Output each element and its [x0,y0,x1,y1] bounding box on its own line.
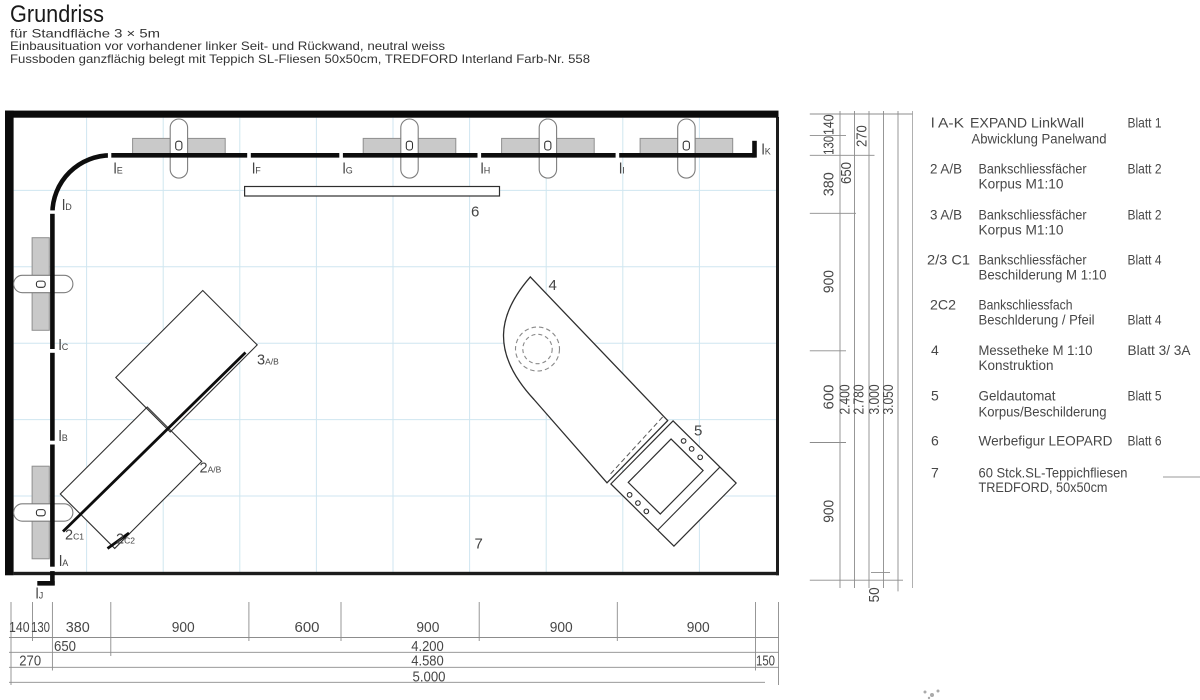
svg-text:4: 4 [931,342,939,358]
svg-text:270: 270 [855,125,871,147]
svg-text:4.200: 4.200 [411,639,444,655]
svg-text:5: 5 [694,423,702,440]
svg-text:6: 6 [471,204,479,221]
svg-text:Beschlderung / Pfeil: Beschlderung / Pfeil [979,312,1095,328]
svg-text:650: 650 [839,162,855,184]
svg-text:140: 140 [9,620,30,636]
svg-text:150: 150 [756,654,775,670]
svg-text:Blatt 5: Blatt 5 [1128,388,1162,404]
svg-text:Blatt 4: Blatt 4 [1128,252,1162,268]
svg-text:Fussboden ganzflächig belegt m: Fussboden ganzflächig belegt mit Teppich… [10,52,590,66]
svg-text:7: 7 [931,465,939,481]
svg-text:Bankschliessfächer: Bankschliessfächer [979,161,1087,177]
svg-text:7: 7 [475,536,483,553]
svg-text:Messetheke M 1:10: Messetheke M 1:10 [979,342,1093,358]
svg-text:EXPAND LinkWall: EXPAND LinkWall [970,115,1084,131]
svg-text:l A-K: l A-K [931,115,965,131]
svg-text:5: 5 [931,388,939,404]
svg-text:Korpus M1:10: Korpus M1:10 [979,221,1064,237]
svg-text:600: 600 [822,385,838,410]
svg-text:2/3 C1: 2/3 C1 [927,252,970,268]
svg-text:900: 900 [550,620,573,636]
svg-text:50: 50 [867,587,883,602]
svg-text:3.050: 3.050 [881,385,897,415]
svg-text:Blatt 2: Blatt 2 [1128,207,1162,223]
svg-text:Grundriss: Grundriss [10,1,104,28]
svg-text:Bankschliessfächer: Bankschliessfächer [979,207,1087,223]
svg-text:Blatt 3/ 3A: Blatt 3/ 3A [1128,342,1192,358]
svg-text:Geldautomat: Geldautomat [979,388,1056,404]
svg-text:5.000: 5.000 [413,669,446,685]
svg-text:Bankschliessfach: Bankschliessfach [979,297,1073,313]
svg-text:Konstruktion: Konstruktion [979,357,1054,373]
svg-text:Korpus/Beschilderung: Korpus/Beschilderung [979,404,1107,420]
svg-text:Korpus M1:10: Korpus M1:10 [979,175,1064,191]
svg-text:380: 380 [66,620,90,636]
svg-text:900: 900 [687,620,710,636]
svg-text:270: 270 [19,654,41,670]
svg-text:TREDFORD, 50x50cm: TREDFORD, 50x50cm [979,479,1108,495]
svg-text:900: 900 [822,500,838,523]
svg-text:380: 380 [822,172,838,196]
svg-text:Einbausituation vor vorhandene: Einbausituation vor vorhandener linker S… [10,39,445,53]
svg-text:140: 140 [822,114,838,135]
svg-text:Beschilderung M 1:10: Beschilderung M 1:10 [979,267,1107,283]
svg-text:Blatt 1: Blatt 1 [1128,115,1162,131]
svg-text:900: 900 [822,270,838,293]
svg-text:650: 650 [54,639,76,655]
svg-text:4.580: 4.580 [411,654,444,670]
svg-text:600: 600 [295,620,320,636]
svg-text:2.780: 2.780 [852,385,868,415]
svg-text:Blatt 2: Blatt 2 [1128,161,1162,177]
svg-text:4: 4 [549,277,557,294]
svg-text:130: 130 [31,620,50,636]
svg-text:Bankschliessfächer: Bankschliessfächer [979,252,1087,268]
svg-text:130: 130 [822,136,838,155]
svg-text:Abwicklung Panelwand: Abwicklung Panelwand [972,130,1107,146]
svg-text:3 A/B: 3 A/B [930,207,962,223]
svg-text:2C2: 2C2 [930,297,956,313]
svg-text:2 A/B: 2 A/B [930,161,962,177]
svg-text:Blatt 4: Blatt 4 [1128,312,1162,328]
svg-text:900: 900 [172,620,195,636]
svg-text:900: 900 [416,620,439,636]
svg-text:Werbefigur LEOPARD: Werbefigur LEOPARD [979,433,1113,449]
svg-text:6: 6 [931,433,939,449]
svg-text:Blatt 6: Blatt 6 [1128,433,1162,449]
